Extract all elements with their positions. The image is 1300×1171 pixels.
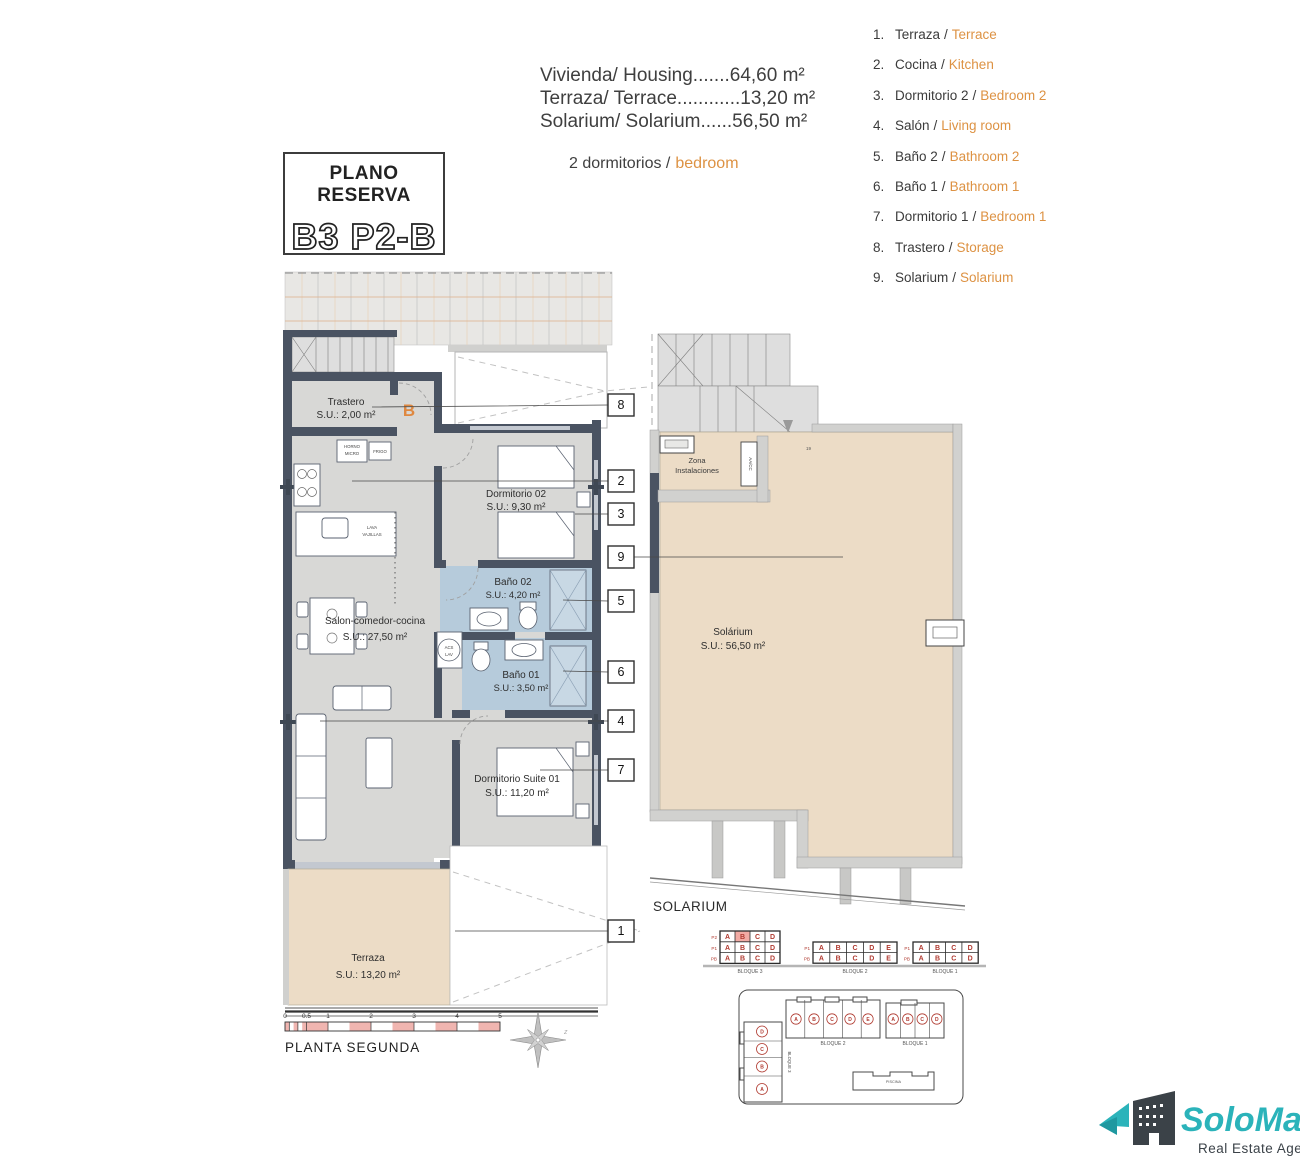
svg-text:B: B	[760, 1065, 764, 1071]
svg-text:B: B	[740, 945, 745, 952]
svg-text:5: 5	[498, 1013, 502, 1020]
svg-text:D: D	[770, 956, 775, 963]
svg-text:C: C	[852, 945, 857, 952]
svg-text:E: E	[886, 945, 891, 952]
solarium-caption: SOLARIUM	[653, 899, 728, 914]
callout-3: 3	[608, 503, 634, 525]
area-line-housing: Vivienda/ Housing.......64,60 m²	[540, 64, 815, 87]
svg-text:C: C	[760, 1047, 764, 1053]
svg-text:HORNO: HORNO	[344, 444, 361, 449]
legend-item-4: 4.Salón/Living room	[873, 119, 1046, 133]
callout-8: 8	[608, 394, 634, 416]
svg-text:0.5: 0.5	[302, 1013, 311, 1020]
svg-text:PB: PB	[904, 957, 910, 962]
sink	[322, 518, 348, 538]
svg-text:P1: P1	[904, 946, 910, 951]
grid-bloque2: P1 PB A B C D E A B C D E BLOQUE 2	[804, 942, 897, 975]
svg-text:1: 1	[618, 924, 625, 938]
svg-text:D: D	[968, 945, 973, 952]
svg-text:1: 1	[326, 1013, 330, 1020]
plano-reserva-box: PLANO RESERVA B3 P2-B	[283, 152, 445, 255]
bed	[498, 512, 574, 558]
callout-7: 7	[608, 759, 634, 781]
svg-text:A: A	[725, 934, 730, 941]
svg-text:S.U.: 27,50 m²: S.U.: 27,50 m²	[343, 632, 408, 643]
svg-text:C: C	[755, 934, 760, 941]
stairs-main	[292, 337, 394, 372]
area-line-solarium: Solarium/ Solarium......56,50 m²	[540, 110, 815, 133]
nightstand	[577, 492, 590, 507]
sail-icon	[1099, 1103, 1129, 1135]
svg-text:7: 7	[618, 763, 625, 777]
label-zona-2: Instalaciones	[675, 466, 719, 475]
legend-item-5: 5.Baño 2/Bathroom 2	[873, 150, 1046, 164]
logo-tagline: Real Estate Agency	[1198, 1141, 1300, 1156]
stair-step-number: 19	[806, 446, 812, 451]
floorplan-page: PLANO RESERVA B3 P2-B Vivienda/ Housing.…	[0, 0, 1300, 1171]
svg-text:S.U.: 13,20 m²: S.U.: 13,20 m²	[336, 970, 401, 981]
legend-item-2: 2.Cocina/Kitchen	[873, 58, 1046, 72]
agency-logo-art: SoloMar Real Estate Agency	[1095, 1083, 1300, 1171]
svg-text:B: B	[906, 1017, 910, 1023]
legend-item-6: 6.Baño 1/Bathroom 1	[873, 180, 1046, 194]
toilet	[519, 607, 537, 629]
zona-wall	[658, 490, 770, 502]
svg-text:P1: P1	[711, 946, 717, 951]
svg-text:2: 2	[618, 474, 625, 488]
grid-bloque1: P1 PB A B C D A B C D BLOQUE 1	[904, 942, 978, 975]
label-terraza: Terraza	[351, 953, 385, 964]
svg-text:D: D	[935, 1017, 939, 1023]
svg-text:A: A	[725, 956, 730, 963]
bedroom-count-en: bedroom	[675, 155, 738, 172]
svg-text:B: B	[740, 956, 745, 963]
callout-9: 9	[608, 546, 634, 568]
svg-text:D: D	[760, 1030, 764, 1036]
svg-text:A: A	[760, 1087, 764, 1093]
label-aacc: AA/CC	[748, 457, 753, 470]
label-bano2: Baño 02	[494, 577, 532, 588]
building-icon	[1133, 1091, 1175, 1145]
callout-6: 6	[608, 661, 634, 683]
bed	[498, 446, 574, 488]
svg-text:BLOQUE 3: BLOQUE 3	[787, 1052, 792, 1074]
svg-text:PB: PB	[804, 957, 810, 962]
svg-text:5: 5	[618, 594, 625, 608]
site-plan: A B C D E BLOQUE 2 A B C D BLOQUE 1	[739, 990, 963, 1104]
callout-1: 1	[608, 920, 634, 942]
svg-text:D: D	[869, 956, 874, 963]
svg-text:B: B	[740, 934, 745, 941]
terrace: Terraza S.U.: 13,20 m²	[283, 869, 450, 1005]
svg-text:6: 6	[618, 665, 625, 679]
chair	[297, 634, 308, 649]
svg-text:A: A	[919, 956, 924, 963]
floor-label: PLANTA SEGUNDA	[285, 1040, 420, 1055]
plano-reserva-title: PLANO RESERVA	[285, 163, 443, 207]
svg-text:8: 8	[618, 398, 625, 412]
label-bano1: Baño 01	[502, 670, 540, 681]
svg-text:3: 3	[618, 507, 625, 521]
svg-text:B: B	[836, 945, 841, 952]
svg-text:D: D	[968, 956, 973, 963]
svg-text:FRIGO: FRIGO	[373, 449, 387, 454]
window-right-2	[594, 755, 598, 825]
svg-text:A: A	[919, 945, 924, 952]
room-legend: 1.Terraza/Terrace 2.Cocina/Kitchen 3.Dor…	[873, 28, 1046, 302]
svg-text:4: 4	[618, 714, 625, 728]
sofa-left	[296, 714, 326, 840]
svg-text:9: 9	[618, 550, 625, 564]
svg-text:D: D	[848, 1017, 852, 1023]
label-salon: Salon-comedor-cocina	[325, 616, 425, 627]
svg-text:MICRO: MICRO	[345, 451, 360, 456]
window-bedroom2	[470, 426, 570, 430]
svg-text:BLOQUE 3: BLOQUE 3	[737, 969, 762, 975]
svg-text:A: A	[819, 956, 824, 963]
svg-text:B: B	[836, 956, 841, 963]
agency-logo: SoloMar Real Estate Agency	[1095, 1083, 1300, 1171]
svg-text:3: 3	[412, 1013, 416, 1020]
area-line-terrace: Terraza/ Terrace............13,20 m²	[540, 87, 815, 110]
nightstand	[576, 804, 589, 818]
legend-item-8: 8.Trastero/Storage	[873, 241, 1046, 255]
svg-text:S.U.: 9,30 m²: S.U.: 9,30 m²	[487, 502, 547, 513]
label-dorm2: Dormitorio 02	[486, 489, 546, 500]
svg-text:PB: PB	[711, 957, 717, 962]
label-trastero: Trastero	[328, 397, 365, 408]
stairs-solarium	[658, 334, 818, 433]
svg-text:B: B	[935, 945, 940, 952]
svg-text:2: 2	[369, 1013, 373, 1020]
svg-text:S.U.: 4,20 m²: S.U.: 4,20 m²	[486, 590, 541, 600]
callout-5: 5	[608, 590, 634, 612]
svg-text:B: B	[935, 956, 940, 963]
callout-2: 2	[608, 470, 634, 492]
floor-plan-canvas: HORNO MICRO FRIGO LAVA VAJILLAS	[280, 265, 992, 1120]
solarium-plan: AA/CC Zona Instalaciones 19 Solárium S.U…	[650, 334, 965, 914]
cooktop	[294, 464, 320, 506]
grid-bloque3: P2 P1 PB A B C D A B C D A B C D BLOQUE …	[711, 931, 780, 975]
svg-text:C: C	[830, 1017, 834, 1023]
svg-text:P1: P1	[804, 946, 810, 951]
label-zona-1: Zona	[688, 456, 706, 465]
svg-text:B: B	[812, 1017, 816, 1023]
bedroom-count-es: 2 dormitorios /	[569, 155, 670, 172]
svg-text:C: C	[951, 956, 956, 963]
svg-text:C: C	[755, 945, 760, 952]
unit-letter-mark: B	[403, 401, 415, 420]
logo-name: SoloMar	[1181, 1101, 1300, 1139]
compass-north-mark: z	[563, 1029, 568, 1036]
svg-text:E: E	[886, 956, 891, 963]
svg-text:BLOQUE 1: BLOQUE 1	[932, 969, 957, 975]
coffee-table	[366, 738, 392, 788]
svg-text:0: 0	[283, 1013, 287, 1020]
compass-rose: z	[510, 1012, 568, 1068]
unit-code: B3 P2-B	[291, 216, 436, 257]
svg-text:C: C	[951, 945, 956, 952]
svg-text:BLOQUE 2: BLOQUE 2	[842, 969, 867, 975]
area-summary: Vivienda/ Housing.......64,60 m² Terraza…	[540, 64, 815, 133]
pool-label: PISCINA	[886, 1080, 902, 1084]
svg-text:A: A	[794, 1017, 798, 1023]
toilet	[472, 649, 490, 671]
callout-4: 4	[608, 710, 634, 732]
svg-text:A: A	[725, 945, 730, 952]
svg-text:C: C	[920, 1017, 924, 1023]
block-grids: P2 P1 PB A B C D A B C D A B C D BLOQUE …	[703, 931, 986, 975]
svg-text:D: D	[770, 945, 775, 952]
svg-text:VAJILLAS: VAJILLAS	[362, 532, 381, 537]
svg-text:S.U.: 11,20 m²: S.U.: 11,20 m²	[485, 788, 549, 799]
legend-item-3: 3.Dormitorio 2/Bedroom 2	[873, 89, 1046, 103]
chair	[356, 602, 367, 617]
svg-text:S.U.: 3,50 m²: S.U.: 3,50 m²	[494, 683, 549, 693]
svg-text:C: C	[755, 956, 760, 963]
svg-text:S.U.: 2,00 m²: S.U.: 2,00 m²	[317, 410, 377, 421]
svg-text:BLOQUE 2: BLOQUE 2	[820, 1041, 845, 1047]
label-suite: Dormitorio Suite 01	[474, 774, 560, 785]
svg-text:D: D	[770, 934, 775, 941]
svg-text:BLOQUE 1: BLOQUE 1	[902, 1041, 927, 1047]
svg-text:C: C	[852, 956, 857, 963]
bedroom-count: 2 dormitorios /bedroom	[569, 155, 739, 173]
svg-text:P2: P2	[711, 935, 717, 940]
svg-text:A: A	[891, 1017, 895, 1023]
chair	[297, 602, 308, 617]
svg-text:A: A	[819, 945, 824, 952]
window-terrace	[295, 862, 440, 869]
section-lines	[285, 1008, 598, 1016]
legend-item-1: 1.Terraza/Terrace	[873, 28, 1046, 42]
label-solarium: Solárium	[713, 627, 752, 638]
nightstand	[576, 742, 589, 756]
svg-text:S.U.: 56,50 m²: S.U.: 56,50 m²	[701, 641, 766, 652]
legend-item-7: 7.Dormitorio 1/Bedroom 1	[873, 210, 1046, 224]
svg-text:LAV: LAV	[445, 652, 453, 657]
unit-code-art: B3 P2-B	[287, 207, 441, 263]
svg-text:ACS: ACS	[445, 645, 454, 650]
svg-text:LAVA: LAVA	[367, 525, 377, 530]
svg-text:D: D	[869, 945, 874, 952]
svg-text:4: 4	[455, 1013, 459, 1020]
